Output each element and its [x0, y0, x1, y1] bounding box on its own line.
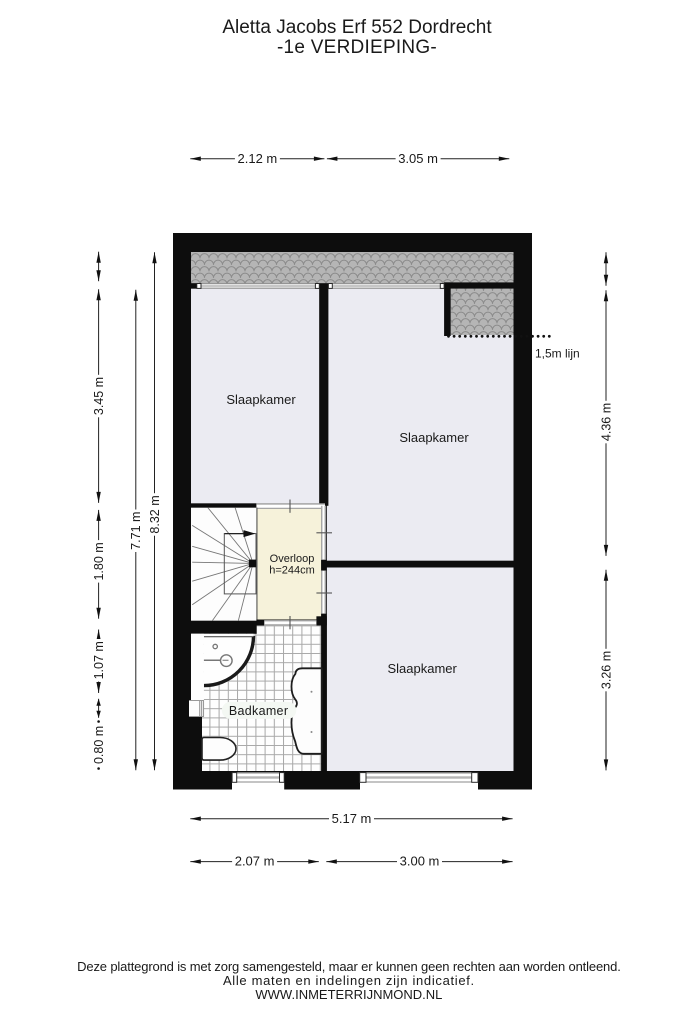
svg-text:8.32 m: 8.32 m — [148, 495, 162, 533]
svg-text:2.07 m: 2.07 m — [235, 854, 275, 869]
svg-text:Badkamer: Badkamer — [229, 704, 288, 718]
svg-text:5.17 m: 5.17 m — [332, 811, 372, 826]
svg-text:Slaapkamer: Slaapkamer — [226, 392, 296, 407]
svg-text:7.71 m: 7.71 m — [129, 512, 143, 550]
svg-text:Aletta Jacobs Erf 552 Dordrech: Aletta Jacobs Erf 552 Dordrecht — [222, 17, 492, 38]
svg-text:-1e VERDIEPING-: -1e VERDIEPING- — [277, 37, 437, 58]
svg-text:1.80 m: 1.80 m — [92, 542, 106, 580]
svg-text:h=244cm: h=244cm — [269, 565, 315, 577]
svg-text:Deze plattegrond is met zorg s: Deze plattegrond is met zorg samengestel… — [77, 959, 621, 974]
svg-text:1.07 m: 1.07 m — [92, 641, 106, 679]
svg-text:4.36 m: 4.36 m — [599, 403, 613, 441]
svg-text:Slaapkamer: Slaapkamer — [388, 661, 458, 676]
svg-text:Slaapkamer: Slaapkamer — [399, 430, 469, 445]
svg-text:WWW.INMETERRIJNMOND.NL: WWW.INMETERRIJNMOND.NL — [255, 987, 442, 1002]
svg-text:2.12 m: 2.12 m — [238, 151, 278, 166]
svg-text:Overloop: Overloop — [270, 553, 315, 565]
svg-text:Alle maten en indelingen zijn: Alle maten en indelingen zijn indicatief… — [223, 973, 475, 988]
svg-text:3.45 m: 3.45 m — [92, 377, 106, 415]
svg-text:3.26 m: 3.26 m — [599, 651, 613, 689]
svg-text:0.80 m: 0.80 m — [92, 726, 106, 764]
svg-text:3.05 m: 3.05 m — [398, 151, 438, 166]
svg-text:1,5m lijn: 1,5m lijn — [535, 347, 580, 361]
svg-text:3.00 m: 3.00 m — [400, 854, 440, 869]
